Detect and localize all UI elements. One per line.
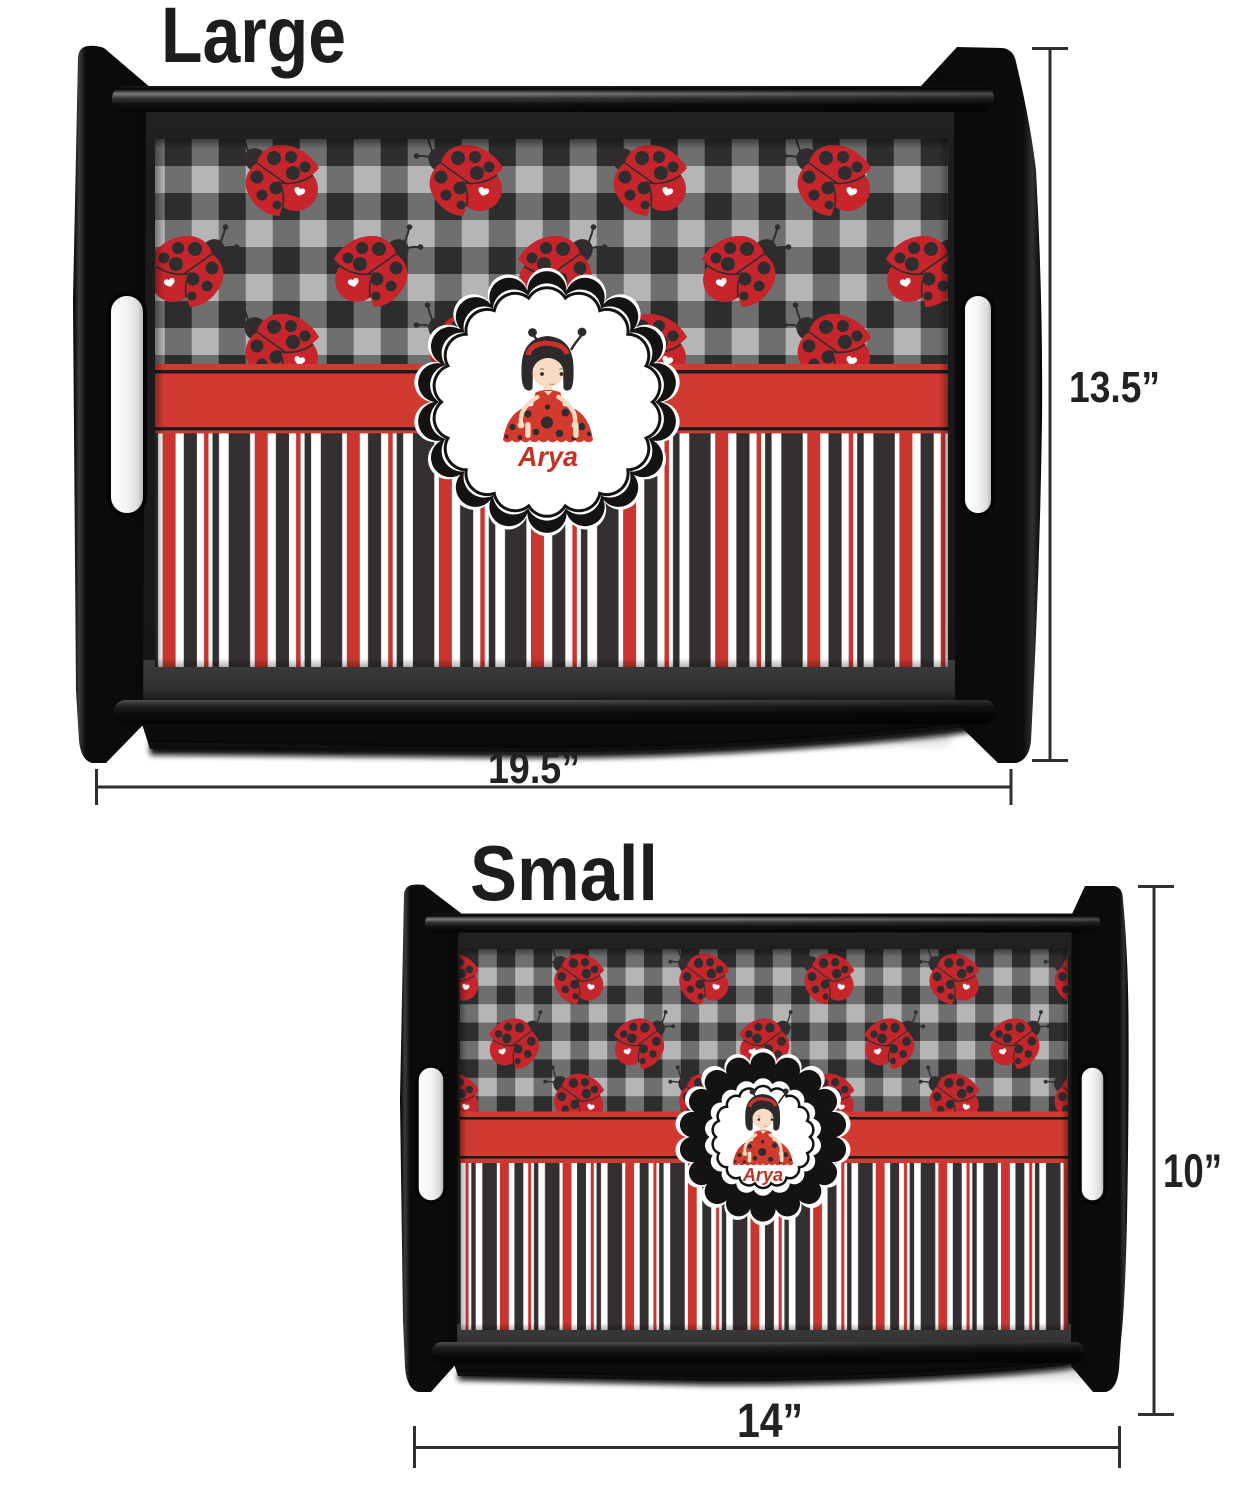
svg-text:10”: 10” bbox=[1163, 1144, 1222, 1197]
svg-text:Large: Large bbox=[161, 0, 346, 79]
svg-text:19.5”: 19.5” bbox=[488, 744, 580, 793]
svg-text:13.5”: 13.5” bbox=[1069, 363, 1160, 412]
svg-text:14”: 14” bbox=[737, 1395, 803, 1448]
svg-text:Small: Small bbox=[470, 829, 658, 917]
